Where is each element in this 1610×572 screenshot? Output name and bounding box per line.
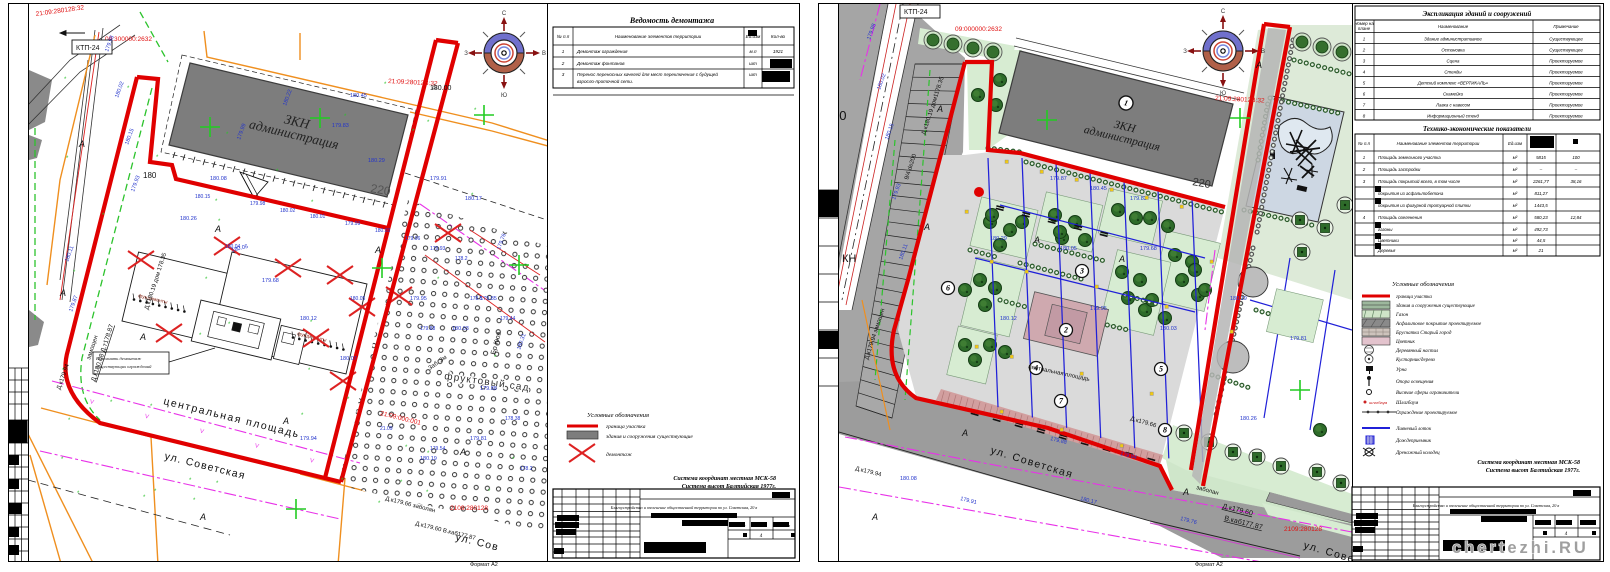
svg-text:2: 2 <box>1362 167 1366 172</box>
svg-text:Опора освещения: Опора освещения <box>1396 380 1434 385</box>
svg-text:Цветники: Цветники <box>1378 238 1399 243</box>
svg-text:5: 5 <box>1159 365 1163 374</box>
svg-text:Скамейки: Скамейки <box>1443 92 1464 97</box>
svg-text:Наименование элементов террито: Наименование элементов территории <box>615 34 702 39</box>
svg-text:179.85: 179.85 <box>480 296 497 302</box>
svg-text:180.04: 180.04 <box>225 244 241 250</box>
svg-text:1921: 1921 <box>773 49 784 54</box>
svg-text:существующих ограждений: существующих ограждений <box>96 364 152 369</box>
svg-text:178.5: 178.5 <box>470 296 483 302</box>
svg-text:Ведомость демонтажа: Ведомость демонтажа <box>629 16 714 25</box>
svg-text:6: 6 <box>946 284 950 293</box>
svg-text:Условные обозначения: Условные обозначения <box>587 412 649 419</box>
svg-text:179.81: 179.81 <box>470 436 487 442</box>
svg-text:Экспликация зданий и сооружени: Экспликация зданий и сооружений <box>1423 10 1532 18</box>
svg-text:chertezhi.RU: chertezhi.RU <box>1452 539 1589 557</box>
svg-text:Лавка с навесом: Лавка с навесом <box>1435 103 1470 108</box>
svg-text:178.2: 178.2 <box>455 256 468 262</box>
svg-text:Проектируемое: Проектируемое <box>1549 70 1583 75</box>
svg-text:шт: шт <box>749 61 757 66</box>
svg-text:А: А <box>199 512 206 522</box>
svg-text:м²: м² <box>1513 191 1518 196</box>
svg-text:21: 21 <box>1538 248 1544 253</box>
svg-text:шт: шт <box>749 72 757 77</box>
svg-text:А: А <box>78 139 85 149</box>
svg-text:взросло-проточной сети.: взросло-проточной сети. <box>577 78 633 84</box>
svg-text:Кол-во: Кол-во <box>771 34 786 39</box>
svg-text:811,27: 811,27 <box>1534 191 1548 196</box>
svg-text:5815: 5815 <box>1536 155 1546 160</box>
svg-text:Система координат местная МСК-: Система координат местная МСК-58 <box>673 475 776 482</box>
svg-text:180.08: 180.08 <box>900 476 917 482</box>
svg-text:А: А <box>1118 254 1125 264</box>
svg-text:180.45: 180.45 <box>350 93 367 99</box>
svg-text:180: 180 <box>143 171 157 180</box>
svg-text:А: А <box>1255 60 1262 70</box>
svg-text:КТП-24: КТП-24 <box>904 9 928 16</box>
svg-text:А: А <box>923 222 930 232</box>
svg-text:м²: м² <box>1513 167 1518 172</box>
svg-text:граница участка: граница участка <box>1396 295 1432 300</box>
svg-text:А: А <box>59 288 66 298</box>
svg-text:Наименование: Наименование <box>1438 24 1469 29</box>
svg-text:180.17: 180.17 <box>465 196 482 202</box>
svg-text:Стенды: Стенды <box>1444 70 1462 75</box>
svg-text:179.88: 179.88 <box>480 386 497 392</box>
svg-text:180.03: 180.03 <box>1160 326 1177 332</box>
svg-text:2261,77: 2261,77 <box>1532 179 1549 184</box>
svg-text:2: 2 <box>1063 326 1068 335</box>
svg-text:шлагбаум: шлагбаум <box>1369 400 1388 405</box>
svg-text:Площадь земельного участка: Площадь земельного участка <box>1378 155 1441 160</box>
svg-text:Остановка: Остановка <box>1441 48 1465 53</box>
svg-text:180.05: 180.05 <box>350 296 366 302</box>
svg-text:№ п.п: № п.п <box>557 34 570 39</box>
svg-text:180.26: 180.26 <box>1240 416 1257 422</box>
svg-text:180.03: 180.03 <box>375 228 391 234</box>
svg-text:Проектируемое: Проектируемое <box>1549 103 1583 108</box>
svg-text:2: 2 <box>1362 48 1366 53</box>
svg-text:КТП-24: КТП-24 <box>76 45 100 52</box>
svg-text:100: 100 <box>1572 155 1580 160</box>
svg-text:Деревянный настил: Деревянный настил <box>1395 348 1438 354</box>
svg-text:м²: м² <box>1513 238 1518 243</box>
svg-text:м²: м² <box>1513 227 1518 232</box>
svg-text:Система высот Балтийская 1977г: Система высот Балтийская 1977г. <box>1486 467 1581 474</box>
svg-text:А: А <box>961 428 968 438</box>
svg-text:А: А <box>139 332 146 342</box>
svg-text:КН: КН <box>842 253 856 265</box>
svg-text:2: 2 <box>561 61 565 66</box>
svg-text:180.45: 180.45 <box>1090 186 1107 192</box>
svg-text:Площадь покрытий всего, в том: Площадь покрытий всего, в том числе <box>1378 179 1461 184</box>
svg-text:А: А <box>1182 487 1189 497</box>
svg-text:179.81: 179.81 <box>1290 336 1307 342</box>
svg-text:179.91: 179.91 <box>430 176 447 182</box>
svg-text:Проектируемое: Проектируемое <box>1549 114 1583 119</box>
svg-text:м²: м² <box>1513 203 1518 208</box>
svg-text:А: А <box>282 416 289 426</box>
svg-text:Перенос переносных качелей для: Перенос переносных качелей для мест пере… <box>577 71 718 77</box>
svg-text:179.83: 179.83 <box>1130 196 1147 202</box>
svg-text:граница участка: граница участка <box>606 424 646 430</box>
svg-text:180.03: 180.03 <box>452 326 469 332</box>
svg-text:44,5: 44,5 <box>1537 238 1546 243</box>
svg-text:Дождеприемник: Дождеприемник <box>1395 439 1432 444</box>
svg-text:179.99: 179.99 <box>345 221 361 227</box>
svg-text:Висячие сферы ограничители: Висячие сферы ограничители <box>1396 391 1460 396</box>
svg-text:580,23: 580,23 <box>1534 215 1548 220</box>
svg-text:180.19: 180.19 <box>1230 296 1247 302</box>
svg-text:38,16: 38,16 <box>1571 179 1583 184</box>
svg-text:–: – <box>1539 167 1543 172</box>
svg-text:21.09: 21.09 <box>380 426 393 432</box>
svg-text:демонтаж: демонтаж <box>606 451 633 458</box>
svg-text:180.19: 180.19 <box>420 456 437 462</box>
svg-text:№ п.п: № п.п <box>1358 141 1371 146</box>
svg-text:△: △ <box>432 83 438 90</box>
svg-text:09:000000:2632: 09:000000:2632 <box>955 26 1002 33</box>
svg-text:А: А <box>459 447 466 457</box>
svg-text:2109:280128: 2109:280128 <box>1284 526 1322 533</box>
svg-text:2109:280128: 2109:280128 <box>450 505 488 512</box>
svg-text:А: А <box>871 512 878 522</box>
svg-text:Газон: Газон <box>1395 313 1409 318</box>
svg-text:м²: м² <box>1513 179 1518 184</box>
svg-text:Проектируемое: Проектируемое <box>1549 59 1583 64</box>
svg-text:Дренажный колодец: Дренажный колодец <box>1395 450 1440 456</box>
svg-text:покрытия из асфальтобетона: покрытия из асфальтобетона <box>1378 191 1444 196</box>
svg-text:Здание административное: Здание административное <box>1424 37 1482 42</box>
svg-text:А: А <box>1033 235 1040 245</box>
svg-text:Цветник: Цветник <box>1395 340 1416 345</box>
svg-text:покрытия из фигурной тротуарно: покрытия из фигурной тротуарной плитки <box>1378 203 1471 208</box>
svg-text:3: 3 <box>1079 267 1084 276</box>
svg-text:179.68: 179.68 <box>1140 246 1157 252</box>
svg-text:Асфальтовое покрытие проектир: Асфальтовое покрытие проектируемое <box>1395 322 1482 327</box>
svg-text:179.83: 179.83 <box>332 123 349 129</box>
svg-text:м²: м² <box>1513 155 1518 160</box>
svg-text:Брусчатка Старый город: Брусчатка Старый город <box>1395 330 1452 336</box>
svg-text:179.68: 179.68 <box>262 278 279 284</box>
svg-text:180.01: 180.01 <box>310 214 326 220</box>
svg-text:Существующее: Существующее <box>1549 48 1583 53</box>
svg-text:180.26: 180.26 <box>180 216 197 222</box>
svg-text:Информационный стенд: Информационный стенд <box>1427 114 1479 119</box>
svg-text:м²: м² <box>1513 248 1518 253</box>
svg-text:Условные обозначения: Условные обозначения <box>1392 281 1454 288</box>
svg-text:Шлагбаум: Шлагбаум <box>1395 401 1419 406</box>
svg-text:Формат А2: Формат А2 <box>1195 562 1223 567</box>
svg-text:здания и сооружения существующ: здания и сооружения существующие <box>605 433 693 440</box>
svg-text:180.15: 180.15 <box>195 194 211 200</box>
svg-text:Существующее: Существующее <box>1549 37 1583 42</box>
svg-text:179.54: 179.54 <box>430 446 446 452</box>
svg-text:А: А <box>214 224 221 234</box>
svg-text:Ливневый лоток: Ливневый лоток <box>1395 426 1432 432</box>
svg-text:179.95: 179.95 <box>410 296 427 302</box>
svg-text:180.29: 180.29 <box>368 158 385 164</box>
svg-text:м.п: м.п <box>750 49 757 54</box>
svg-text:Детский комплекс «ВЕРТИКАЛЬ»: Детский комплекс «ВЕРТИКАЛЬ» <box>1417 81 1489 86</box>
svg-text:Кустарник/дерево: Кустарник/дерево <box>1395 358 1436 363</box>
svg-text:Проектируемое: Проектируемое <box>1549 92 1583 97</box>
svg-text:180.12: 180.12 <box>300 316 317 322</box>
svg-text:здания и сооружения существующ: здания и сооружения существующие <box>1395 304 1476 309</box>
svg-text:Ограждение проектируемое: Ограждение проектируемое <box>1396 411 1458 416</box>
svg-text:Сцена: Сцена <box>1447 59 1461 64</box>
svg-text:12,84: 12,84 <box>1571 215 1583 220</box>
svg-text:Примечание: Примечание <box>1553 24 1579 29</box>
svg-text:Система координат местная МСК-: Система координат местная МСК-58 <box>1477 459 1580 466</box>
svg-text:1443,5: 1443,5 <box>1534 203 1548 208</box>
svg-text:180.08: 180.08 <box>210 176 227 182</box>
svg-text:плане: плане <box>1358 26 1371 31</box>
svg-text:Демонтаж ограждения: Демонтаж ограждения <box>576 49 628 54</box>
svg-text:180.12: 180.12 <box>1000 316 1017 322</box>
svg-text:3: 3 <box>562 72 565 77</box>
svg-text:Наименование элементов террито: Наименование элементов территории <box>1397 141 1480 146</box>
svg-text:8: 8 <box>1163 426 1167 435</box>
svg-text:179.87: 179.87 <box>1050 176 1067 182</box>
svg-text:179.93: 179.93 <box>430 246 446 252</box>
svg-text:179.98: 179.98 <box>250 201 266 207</box>
svg-text:Демонтаж фонтанов: Демонтаж фонтанов <box>576 61 625 66</box>
svg-text:Площадь озеленения: Площадь озеленения <box>1378 215 1423 220</box>
svg-text:492,73: 492,73 <box>1534 227 1548 232</box>
svg-text:180.29: 180.29 <box>990 236 1007 242</box>
svg-text:179.88: 179.88 <box>420 326 436 332</box>
svg-text:А: А <box>374 245 381 255</box>
svg-text:179.96: 179.96 <box>405 236 421 242</box>
svg-text:179.44: 179.44 <box>500 316 516 322</box>
svg-text:180.02: 180.02 <box>280 208 296 214</box>
svg-text:Урна: Урна <box>1396 368 1407 373</box>
svg-text:А: А <box>936 104 943 114</box>
svg-text:Площадь застройки: Площадь застройки <box>1378 167 1421 172</box>
svg-text:1: 1 <box>562 49 565 54</box>
svg-text:179.94: 179.94 <box>300 436 317 442</box>
svg-text:180.07: 180.07 <box>340 356 357 362</box>
svg-text:179.95: 179.95 <box>1090 306 1107 312</box>
svg-text:м²: м² <box>1513 215 1518 220</box>
svg-text:178.38: 178.38 <box>505 416 521 422</box>
svg-text:180.05: 180.05 <box>1060 246 1077 252</box>
svg-text:Проектируемое: Проектируемое <box>1549 81 1583 86</box>
svg-text:–: – <box>1574 167 1578 172</box>
svg-text:Технико-экономические показате: Технико-экономические показатели <box>1423 126 1531 133</box>
svg-text:Ед.изм: Ед.изм <box>1508 141 1522 146</box>
svg-text:178.2: 178.2 <box>520 466 533 472</box>
svg-text:Формат А2: Формат А2 <box>470 562 498 567</box>
